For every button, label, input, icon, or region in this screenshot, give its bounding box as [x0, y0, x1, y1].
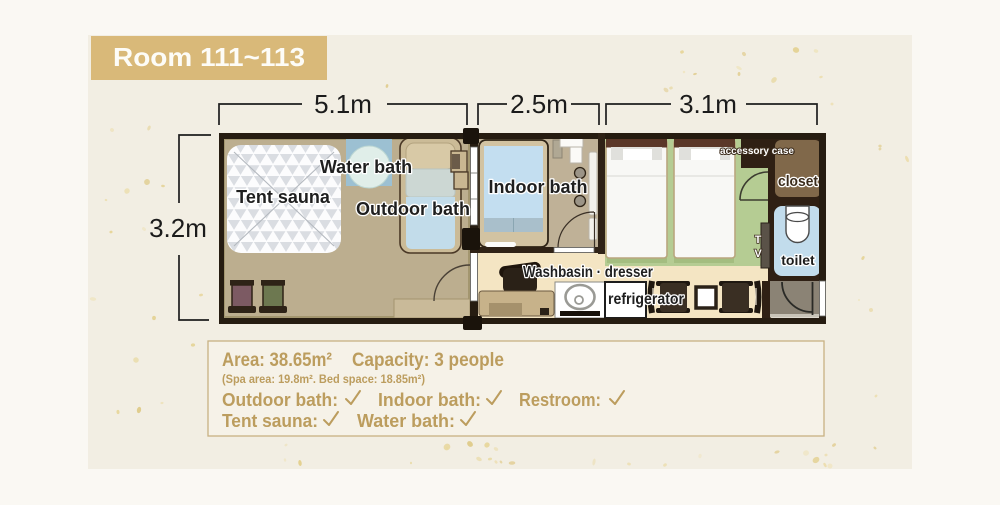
svg-text:Restroom:: Restroom:	[519, 390, 601, 410]
svg-text:5.1m: 5.1m	[314, 89, 372, 119]
svg-text:(Spa area: 19.8m². Bed space:: (Spa area: 19.8m². Bed space: 18.85m²)	[222, 372, 425, 386]
svg-text:toilet: toilet	[781, 252, 815, 268]
svg-text:Water bath: Water bath	[320, 157, 412, 177]
svg-text:T: T	[755, 234, 762, 246]
svg-text:Washbasin · dresser: Washbasin · dresser	[523, 264, 653, 281]
svg-text:Outdoor bath: Outdoor bath	[356, 199, 470, 219]
svg-text:3.1m: 3.1m	[679, 89, 737, 119]
svg-text:closet: closet	[778, 173, 818, 190]
svg-text:Capacity: 3 people: Capacity: 3 people	[352, 350, 504, 371]
svg-text:refrigerator: refrigerator	[608, 291, 684, 308]
svg-text:3.2m: 3.2m	[149, 213, 207, 243]
svg-text:Indoor bath: Indoor bath	[489, 177, 588, 197]
svg-text:V: V	[754, 248, 762, 260]
svg-text:Tent sauna: Tent sauna	[236, 187, 331, 207]
svg-text:Outdoor bath:: Outdoor bath:	[222, 390, 338, 410]
svg-text:Room 111~113: Room 111~113	[113, 42, 305, 72]
svg-text:accessory case: accessory case	[720, 146, 794, 157]
svg-text:Area: 38.65m²: Area: 38.65m²	[222, 350, 332, 371]
svg-text:Tent sauna:: Tent sauna:	[222, 411, 318, 431]
svg-text:Water bath:: Water bath:	[357, 411, 455, 431]
svg-text:Indoor bath:: Indoor bath:	[378, 390, 481, 410]
svg-text:2.5m: 2.5m	[510, 89, 568, 119]
